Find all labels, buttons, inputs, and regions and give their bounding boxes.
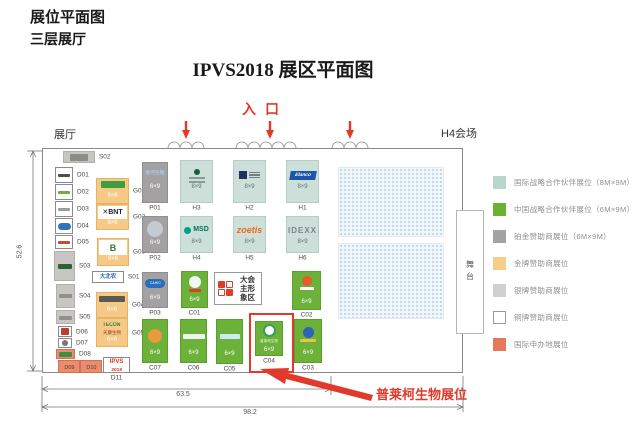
booth-size: 6×9 <box>145 295 165 301</box>
booth-label-P03: P03 <box>143 310 167 317</box>
page-subheading: 三层展厅 <box>30 29 86 49</box>
booth-H6: IDEXX8×9 <box>286 216 319 253</box>
booth-inner-label: D09 <box>64 363 74 372</box>
logo-text: MSD <box>193 226 209 234</box>
conference-image-area: 大会 主形象区 <box>214 272 262 305</box>
booth-size: 6×9 <box>219 351 240 357</box>
booth-logo <box>58 223 71 230</box>
booth-label-S02: S02 <box>99 154 110 161</box>
booth-H5: zoetis8×9 <box>233 216 266 253</box>
logo-text: CAHIC <box>149 281 160 285</box>
conference-area-label: 大会 主形象区 <box>237 275 258 302</box>
booth-label-C04: C04 <box>256 358 282 365</box>
legend-label: 铜牌赞助商展位 <box>514 312 569 323</box>
booth-D02 <box>55 184 73 200</box>
booth-D10: D10 <box>80 360 102 373</box>
booth-label-S05: S05 <box>79 314 90 321</box>
booth-size: 6×9 <box>183 350 204 356</box>
booth-G01: 6×6 <box>96 178 129 204</box>
booth-logo <box>62 340 68 346</box>
legend-label: 金牌赞助商展位 <box>514 258 569 269</box>
booth-logo <box>300 339 316 342</box>
booth-logo <box>58 174 70 177</box>
seating-area-bottom <box>338 243 444 319</box>
booth-S05 <box>56 310 75 324</box>
booth-size: 6×6 <box>100 256 126 262</box>
booth-logo: ✕BNT <box>98 206 127 219</box>
booth-label-H4: H4 <box>181 255 211 262</box>
seating-area-top <box>338 167 444 237</box>
booth-C06: 6×9 <box>180 319 207 363</box>
logo-text: IDEXX <box>288 226 317 235</box>
booth-logo: B <box>99 240 127 255</box>
booth-size: 8×9 <box>236 239 262 245</box>
booth-logo <box>189 289 201 292</box>
booth-D03 <box>55 201 73 217</box>
booth-label-H5: H5 <box>234 255 264 262</box>
booth-logo: TECON天康生物 <box>100 322 124 337</box>
booth-label-D03: D03 <box>77 206 89 213</box>
booth-label-S04: S04 <box>79 293 90 300</box>
booth-G02: ✕BNT6×6 <box>96 204 129 230</box>
legend-item-1: 中国战略合作伙伴展位（6M×9M） <box>493 203 634 216</box>
logo-text: 天康生物 <box>103 331 121 336</box>
booth-label-P02: P02 <box>143 255 167 262</box>
booth-size: 8×9 <box>289 239 315 245</box>
booth-size: 8×9 <box>289 184 315 190</box>
booth-logo <box>303 327 314 338</box>
booth-logo <box>58 208 70 211</box>
booth-logo <box>70 154 88 161</box>
floor-plan-page: 展位平面图 三层展厅 IPVS2018 展区平面图 入口 展厅 H4会场 舞台 … <box>0 0 640 437</box>
booth-logo <box>99 296 125 302</box>
legend-swatch <box>493 338 506 351</box>
legend-item-6: 国际申办地展位 <box>493 338 634 351</box>
booth-C05: 6×9 <box>216 319 243 364</box>
legend: 国际战略合作伙伴展位（8M×9M）中国战略合作伙伴展位（6M×9M）铂金赞助商展… <box>493 176 634 351</box>
booth-D07 <box>58 338 72 348</box>
legend-label: 国际战略合作伙伴展位（8M×9M） <box>514 177 634 188</box>
booth-label-C01: C01 <box>182 310 207 317</box>
booth-logo: IPVS2018 <box>110 359 124 374</box>
stage-area: 舞台 <box>456 210 484 334</box>
booth-size: 6×6 <box>99 307 125 313</box>
booth-label-D06: D06 <box>76 329 88 336</box>
booth-label-D04: D04 <box>77 223 89 230</box>
booth-logo <box>58 264 72 269</box>
dimension-bottom-outer: 98.2 <box>225 409 275 416</box>
booth-H3: 8×9 <box>180 160 213 203</box>
legend-swatch <box>493 176 506 189</box>
booth-D04 <box>55 218 73 234</box>
booth-logo <box>148 329 162 343</box>
booth-P02: 6×9 <box>142 216 168 253</box>
booth-S01: 大北农 <box>92 271 124 283</box>
booth-logo <box>300 276 314 290</box>
legend-swatch <box>493 230 506 243</box>
legend-label: 中国战略合作伙伴展位（6M×9M） <box>514 204 634 215</box>
legend-swatch <box>493 284 506 297</box>
booth-logo <box>61 328 69 335</box>
booth-C03: 6×9 <box>294 319 322 363</box>
booth-label-P01: P01 <box>143 205 167 212</box>
booth-label-C05: C05 <box>217 366 242 373</box>
booth-logo: CAHIC <box>145 279 165 288</box>
booth-size: 8×9 <box>183 239 209 245</box>
booth-logo <box>58 191 70 194</box>
logo-text: Elanco <box>294 173 311 179</box>
booth-label-D07: D07 <box>76 340 88 347</box>
booth-label-H1: H1 <box>287 205 317 212</box>
booth-logo <box>302 276 312 286</box>
booth-logo <box>58 241 70 244</box>
logo-text: 大北农 <box>100 274 116 280</box>
pulike-callout-label: 普莱柯生物展位 <box>376 384 467 403</box>
legend-swatch <box>493 257 506 270</box>
stage-area-label: 舞台 <box>465 260 476 284</box>
booth-label-H2: H2 <box>234 205 264 212</box>
booth-H4: MSD8×9 <box>180 216 213 253</box>
booth-C04: 普莱柯生物6×9 <box>255 321 283 356</box>
booth-G05: TECON天康生物6×6 <box>96 318 128 347</box>
logo-text: ✕BNT <box>102 209 122 217</box>
booth-S02 <box>63 151 95 163</box>
booth-size: 6×6 <box>99 193 125 199</box>
booth-label-C06: C06 <box>181 365 206 372</box>
booth-logo <box>59 316 72 320</box>
booth-logo: MSD <box>184 226 209 234</box>
booth-logo <box>101 181 125 188</box>
booth-size: 6×9 <box>145 184 165 190</box>
booth-logo <box>300 327 316 342</box>
booth-logo <box>183 334 205 339</box>
booth-D11: IPVS2018 <box>103 357 130 373</box>
entrance-label: 入口 <box>242 99 288 119</box>
conference-stamp-icon <box>218 281 233 296</box>
booth-size: 6×9 <box>145 350 165 356</box>
logo-text: 2018 <box>111 368 122 374</box>
dimension-bottom-inner: 63.5 <box>158 391 208 398</box>
booth-label-S01: S01 <box>128 274 139 281</box>
booth-label-H3: H3 <box>181 205 211 212</box>
legend-swatch <box>493 203 506 216</box>
booth-size: 6×9 <box>184 297 205 303</box>
booth-logo <box>184 227 191 234</box>
booth-logo <box>189 276 201 292</box>
booth-size: 8×9 <box>183 184 209 190</box>
legend-label: 铂金赞助商展位（6M×9M） <box>514 231 611 242</box>
booth-S04 <box>56 284 75 308</box>
booth-D09: D09 <box>58 360 80 373</box>
legend-item-3: 金牌赞助商展位 <box>493 257 634 270</box>
booth-logo: 普莱柯生物 <box>254 324 284 345</box>
booth-P01: 金河生物6×9 <box>142 162 168 203</box>
booth-G04: 6×6 <box>96 292 128 318</box>
booth-logo <box>147 221 163 237</box>
dimension-left: 52.6 <box>16 245 23 259</box>
booth-logo <box>59 352 72 357</box>
legend-label: 银牌赞助商展位 <box>514 285 569 296</box>
booth-C02: 6×9 <box>292 271 321 310</box>
logo-text: TECON <box>103 323 121 329</box>
booth-H1: Elanco8×9 <box>286 160 319 203</box>
booth-D05 <box>55 235 73 249</box>
booth-logo <box>59 294 72 298</box>
booth-P03: CAHIC6×9 <box>142 272 168 308</box>
booth-logo <box>189 276 201 288</box>
logo-text: 普莱柯生物 <box>260 339 278 343</box>
booth-D01 <box>55 167 73 183</box>
booth-D06 <box>58 326 72 337</box>
booth-G03: B6×6 <box>97 238 129 266</box>
booth-D08 <box>56 349 75 359</box>
booth-label-C03: C03 <box>295 365 321 372</box>
booth-H2: 8×9 <box>233 160 266 203</box>
booth-label-S03: S03 <box>79 263 90 270</box>
legend-item-0: 国际战略合作伙伴展位（8M×9M） <box>493 176 634 189</box>
logo-text: B <box>110 243 117 253</box>
plan-title: IPVS2018 展区平面图 <box>103 55 463 82</box>
legend-label: 国际申办地展位 <box>514 339 569 350</box>
booth-C07: 6×9 <box>142 319 168 363</box>
booth-logo <box>300 287 314 290</box>
booth-label-D11: D11 <box>104 375 129 382</box>
legend-swatch <box>493 311 506 324</box>
booth-size: 8×9 <box>236 184 262 190</box>
logo-text: zoetis <box>237 225 263 235</box>
logo-text: IPVS <box>110 359 124 366</box>
booth-C01: 6×9 <box>181 271 208 308</box>
booth-label-D01: D01 <box>77 172 89 179</box>
booth-size: 6×9 <box>258 347 280 353</box>
page-heading: 展位平面图 <box>30 6 105 27</box>
booth-size: 6×9 <box>145 240 165 246</box>
booth-inner-label: D10 <box>86 363 96 372</box>
booth-S03 <box>54 251 75 281</box>
booth-logo: Elanco <box>289 171 317 180</box>
booth-label-D08: D08 <box>79 351 91 358</box>
hall-label: 展厅 <box>54 126 76 142</box>
legend-item-5: 铜牌赞助商展位 <box>493 311 634 324</box>
booth-logo <box>263 324 276 337</box>
booth-size: 6×9 <box>295 299 318 305</box>
booth-logo <box>220 334 240 339</box>
booth-size: 6×6 <box>99 337 125 343</box>
booth-label-C07: C07 <box>143 365 167 372</box>
booth-logo <box>239 171 260 179</box>
booth-label-H6: H6 <box>287 255 317 262</box>
legend-item-2: 铂金赞助商展位（6M×9M） <box>493 230 634 243</box>
booth-logo <box>189 169 205 183</box>
booth-size: 6×6 <box>99 220 125 226</box>
booth-label-D02: D02 <box>77 189 89 196</box>
booth-label-D05: D05 <box>77 239 89 246</box>
logo-text: 金河生物 <box>145 171 164 177</box>
venue-label: H4会场 <box>441 125 477 141</box>
legend-item-4: 银牌赞助商展位 <box>493 284 634 297</box>
booth-size: 6×9 <box>297 350 319 356</box>
